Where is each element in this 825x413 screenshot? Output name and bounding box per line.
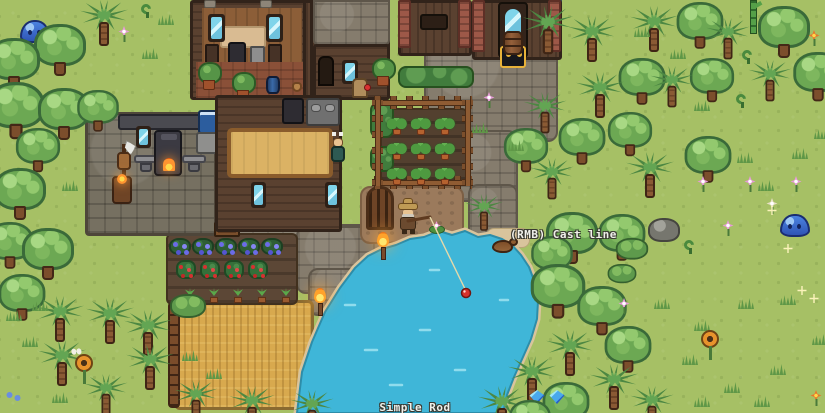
berry-red[interactable] — [176, 260, 196, 282]
rock — [648, 218, 680, 242]
fisherman-boots — [402, 229, 407, 234]
tree-palm — [229, 386, 275, 413]
grass — [682, 354, 698, 365]
tree-palm — [630, 386, 673, 413]
tree-palm — [84, 374, 127, 413]
game-viewport: (RMB) Cast line Simple Rod — [0, 0, 825, 413]
grass — [792, 148, 808, 159]
berry-purple[interactable] — [192, 238, 214, 258]
crop[interactable] — [387, 143, 407, 160]
barrel[interactable] — [503, 31, 523, 55]
tree-palm — [630, 6, 678, 52]
berry-red[interactable] — [224, 260, 244, 282]
tree-palm — [650, 66, 693, 107]
grass — [724, 382, 740, 393]
flower-orange — [811, 390, 822, 406]
grass — [158, 14, 174, 25]
tree-round — [76, 90, 119, 132]
fisherman-hat-crown — [403, 198, 413, 204]
flower-pink — [698, 176, 709, 192]
fern — [684, 240, 696, 254]
flower-pink — [791, 176, 802, 192]
torch — [313, 288, 327, 316]
tree-round — [607, 112, 653, 156]
tree-palm — [126, 344, 174, 390]
tree-round — [757, 6, 811, 58]
crop[interactable] — [435, 118, 455, 135]
tree-round — [792, 52, 825, 101]
grass — [814, 128, 825, 139]
tree-palm — [626, 152, 674, 198]
bush — [170, 294, 206, 318]
tree-round — [21, 228, 75, 280]
crop[interactable] — [387, 168, 407, 185]
berry-purple[interactable] — [169, 238, 191, 258]
grass — [738, 298, 754, 309]
crop[interactable] — [411, 143, 431, 160]
grass — [737, 152, 753, 163]
crop[interactable] — [435, 143, 455, 160]
grass — [472, 122, 488, 133]
sunflower — [700, 330, 720, 360]
held-item-label: Simple Rod — [379, 401, 450, 413]
grass — [52, 392, 68, 403]
grass — [206, 368, 222, 379]
grass — [754, 396, 770, 407]
fern — [141, 4, 153, 18]
grass — [182, 350, 198, 361]
grass — [142, 48, 158, 59]
tree-palm — [523, 6, 573, 54]
crop[interactable] — [411, 118, 431, 135]
seedling[interactable] — [208, 288, 220, 303]
berry-red[interactable] — [200, 260, 220, 282]
tree-round — [689, 58, 735, 102]
grass — [62, 180, 78, 191]
flower-pink — [745, 176, 756, 192]
tree-palm — [748, 60, 791, 101]
tree-round — [0, 168, 47, 220]
tree-round — [508, 400, 551, 413]
crop[interactable] — [387, 118, 407, 135]
grass — [770, 364, 786, 375]
torch — [376, 232, 390, 260]
sparkle — [798, 286, 807, 295]
grass — [694, 396, 710, 407]
flower-pink — [723, 220, 734, 236]
flower-blue — [7, 392, 22, 403]
fern — [736, 94, 748, 108]
grass — [758, 180, 774, 191]
flower-pink — [484, 92, 495, 108]
sparkle — [810, 294, 819, 303]
crop[interactable] — [435, 168, 455, 185]
lily — [428, 221, 446, 234]
seedling[interactable] — [280, 288, 292, 303]
tree-round — [33, 24, 87, 76]
bush — [608, 264, 637, 283]
tree-palm — [568, 16, 616, 62]
sparkle — [784, 244, 793, 253]
grass — [812, 334, 825, 345]
tree-palm — [530, 158, 573, 199]
berry-purple[interactable] — [238, 238, 260, 258]
crop[interactable] — [411, 168, 431, 185]
tree-palm — [290, 390, 333, 413]
fisherman-hat — [398, 203, 418, 210]
flower-pink — [119, 26, 130, 42]
grass — [780, 294, 796, 305]
bush — [616, 238, 648, 260]
tree-palm — [174, 380, 217, 413]
berry-purple[interactable] — [215, 238, 237, 258]
grass — [654, 298, 670, 309]
slime[interactable] — [780, 214, 810, 237]
interaction-tooltip: (RMB) Cast line — [510, 228, 617, 241]
seedling[interactable] — [232, 288, 244, 303]
npc-fisherman[interactable] — [394, 200, 424, 236]
tree-round — [15, 128, 61, 172]
flower-orange — [809, 30, 820, 46]
seedling[interactable] — [256, 288, 268, 303]
berry-red[interactable] — [248, 260, 268, 282]
flower-pink — [619, 298, 630, 314]
tree-palm — [465, 194, 503, 231]
berry-purple[interactable] — [261, 238, 283, 258]
